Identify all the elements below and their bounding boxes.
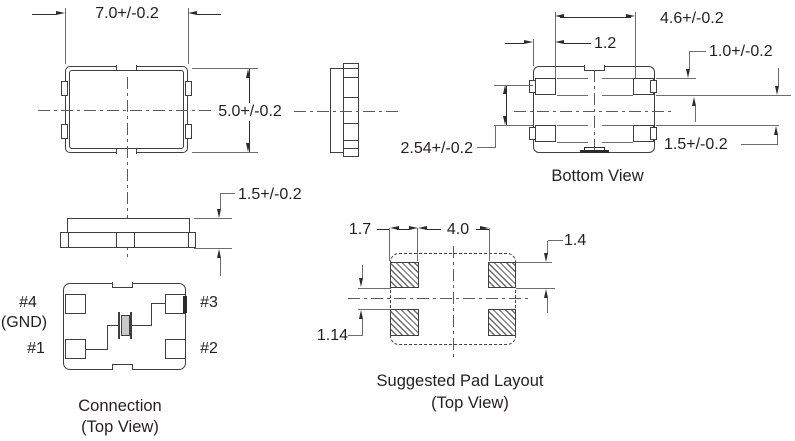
extension-line bbox=[417, 228, 418, 261]
castellation bbox=[529, 80, 536, 93]
arrowhead bbox=[774, 126, 778, 135]
pin4-gnd-note: (GND) bbox=[0, 314, 48, 332]
centerline bbox=[348, 298, 530, 299]
solder-pad bbox=[488, 262, 516, 288]
dim-pad-inner-gap: 4.0 bbox=[442, 221, 474, 239]
solder-pad bbox=[488, 309, 516, 336]
centerline bbox=[514, 111, 672, 112]
lid-profile bbox=[67, 218, 190, 233]
extension-line bbox=[489, 228, 490, 261]
wire bbox=[86, 349, 107, 350]
arrowhead bbox=[626, 14, 635, 18]
solder-pad bbox=[390, 309, 419, 336]
extension-line bbox=[494, 125, 533, 126]
arrowhead bbox=[246, 69, 250, 78]
segment-line bbox=[344, 68, 358, 69]
pad-edge-line bbox=[602, 142, 633, 143]
segment-line bbox=[344, 123, 358, 124]
arrowhead bbox=[359, 310, 363, 319]
pad-3-edge-mark bbox=[183, 296, 187, 313]
connection-caption: Connection bbox=[70, 397, 170, 416]
leader-line bbox=[695, 106, 696, 122]
extension-line bbox=[555, 12, 556, 78]
pad bbox=[535, 78, 556, 95]
extension-line bbox=[516, 262, 552, 263]
centerline bbox=[294, 111, 398, 112]
arrowhead bbox=[503, 85, 507, 94]
arrowhead bbox=[188, 11, 197, 15]
centerline bbox=[453, 246, 454, 357]
center-seal-line bbox=[116, 233, 117, 247]
leader-line bbox=[547, 298, 548, 313]
castellation bbox=[61, 124, 68, 139]
connection-subcaption: (Top View) bbox=[70, 418, 170, 437]
extension-line bbox=[192, 152, 258, 153]
leader-line bbox=[220, 258, 221, 276]
leader-line bbox=[741, 144, 778, 145]
end-cap-line bbox=[188, 233, 189, 247]
dimension-line bbox=[560, 17, 631, 18]
arrowhead bbox=[56, 11, 65, 15]
arrowhead bbox=[409, 226, 418, 230]
pad bbox=[535, 125, 556, 142]
wire bbox=[132, 325, 152, 326]
pad-1 bbox=[65, 339, 86, 359]
leader-line bbox=[778, 68, 779, 86]
leader-line bbox=[348, 335, 362, 336]
centerline bbox=[594, 70, 595, 150]
dim-pad-height: 1.0+/-0.2 bbox=[709, 43, 773, 61]
arrowhead bbox=[480, 226, 489, 230]
pin2-label: #2 bbox=[189, 340, 229, 358]
dim-pad-pitch: 2.54+/-0.2 bbox=[396, 140, 473, 158]
pad-2 bbox=[165, 339, 186, 359]
bottom-view-caption: Bottom View bbox=[545, 167, 650, 186]
extension-line bbox=[65, 8, 66, 64]
segment-line bbox=[344, 77, 358, 78]
arrowhead bbox=[692, 97, 696, 106]
pad-4 bbox=[65, 294, 86, 314]
extension-line bbox=[358, 288, 391, 289]
dim-pad-width: 1.7 bbox=[344, 221, 376, 239]
segment-line bbox=[344, 140, 358, 141]
castellation bbox=[61, 81, 68, 96]
castellation bbox=[650, 127, 657, 140]
pad-edge-line bbox=[602, 95, 633, 96]
extension-line bbox=[194, 248, 232, 249]
crystal-plate bbox=[118, 312, 120, 339]
wire bbox=[107, 325, 118, 326]
pad-edge-line bbox=[602, 78, 633, 79]
leader-line bbox=[362, 265, 363, 279]
dimension-line bbox=[32, 14, 56, 15]
extension-line bbox=[188, 8, 189, 64]
dim-pad-vertical-gap: 1.14 bbox=[312, 327, 348, 345]
arrowhead bbox=[775, 86, 779, 95]
extension-line bbox=[194, 218, 232, 219]
extension-line bbox=[656, 125, 779, 126]
dimension-line bbox=[564, 43, 591, 44]
pin1-label: #1 bbox=[16, 340, 56, 358]
arrowhead bbox=[418, 226, 427, 230]
pad-layout-caption: Suggested Pad Layout bbox=[375, 372, 545, 391]
pad-edge-line bbox=[557, 125, 588, 126]
pad-layout-subcaption: (Top View) bbox=[385, 394, 555, 413]
arrowhead bbox=[524, 40, 533, 44]
leader-line bbox=[548, 240, 563, 241]
arrowhead bbox=[246, 143, 250, 152]
segment-line bbox=[344, 148, 358, 149]
extension-line bbox=[533, 39, 534, 66]
extension-line bbox=[656, 78, 696, 79]
leader-line bbox=[377, 229, 389, 230]
leader-line bbox=[362, 319, 363, 336]
wire bbox=[151, 303, 152, 326]
base-profile bbox=[60, 232, 196, 248]
solder-pad bbox=[390, 262, 419, 288]
extension-line bbox=[516, 288, 555, 289]
leader-line bbox=[689, 51, 706, 52]
crystal-body bbox=[121, 315, 130, 336]
pin3-label: #3 bbox=[189, 294, 229, 312]
arrowhead bbox=[555, 40, 564, 44]
pad-edge-line bbox=[557, 95, 588, 96]
dimension-line bbox=[427, 229, 441, 230]
extension-line bbox=[494, 85, 533, 86]
leader-line bbox=[477, 147, 496, 148]
dim-pad-gap: 1.5+/-0.2 bbox=[664, 136, 728, 154]
segment-line bbox=[344, 97, 358, 98]
leader-line bbox=[689, 52, 690, 69]
dim-pad-width: 1.2 bbox=[594, 35, 616, 53]
end-cap-line bbox=[68, 233, 69, 247]
wire bbox=[107, 325, 108, 350]
arrowhead bbox=[503, 116, 507, 125]
arrowhead bbox=[544, 289, 548, 298]
centerline bbox=[38, 110, 218, 111]
castellation bbox=[650, 80, 657, 93]
pad-edge-line bbox=[602, 125, 633, 126]
bottom-notch-bar bbox=[580, 150, 609, 153]
pad-edge-line bbox=[557, 78, 588, 79]
bottom-edge-notch bbox=[112, 364, 133, 370]
wire bbox=[152, 303, 165, 304]
arrowhead bbox=[359, 278, 363, 287]
arrowhead bbox=[217, 249, 221, 258]
leader-line bbox=[220, 193, 221, 210]
castellation bbox=[529, 127, 536, 140]
arrowhead bbox=[686, 69, 690, 78]
extension-line bbox=[635, 12, 636, 78]
top-edge-notch bbox=[112, 282, 133, 288]
castellation bbox=[185, 81, 192, 96]
pin4-label: #4 bbox=[8, 294, 48, 312]
arrowhead bbox=[544, 253, 548, 262]
leader-line bbox=[220, 193, 235, 194]
arrowhead bbox=[555, 14, 564, 18]
leader-line bbox=[495, 126, 496, 148]
dim-thickness: 1.5+/-0.2 bbox=[238, 186, 302, 204]
arrowhead bbox=[217, 209, 221, 218]
pad-edge-line bbox=[557, 142, 588, 143]
extension-line bbox=[389, 228, 390, 261]
top-edge-notch bbox=[116, 65, 137, 71]
castellation bbox=[185, 124, 192, 139]
technical-drawing-canvas: 7.0+/-0.2 5.0+/-0.2 bbox=[0, 0, 795, 441]
dimension-line bbox=[505, 43, 524, 44]
dim-top-width: 7.0+/-0.2 bbox=[77, 5, 177, 23]
dim-pad-height: 1.4 bbox=[564, 232, 586, 250]
center-seal-line bbox=[134, 233, 135, 247]
dim-top-height: 5.0+/-0.2 bbox=[213, 103, 287, 121]
dimension-line bbox=[197, 14, 221, 15]
extension-line bbox=[656, 95, 791, 96]
dim-bottom-width: 4.6+/-0.2 bbox=[660, 10, 724, 28]
